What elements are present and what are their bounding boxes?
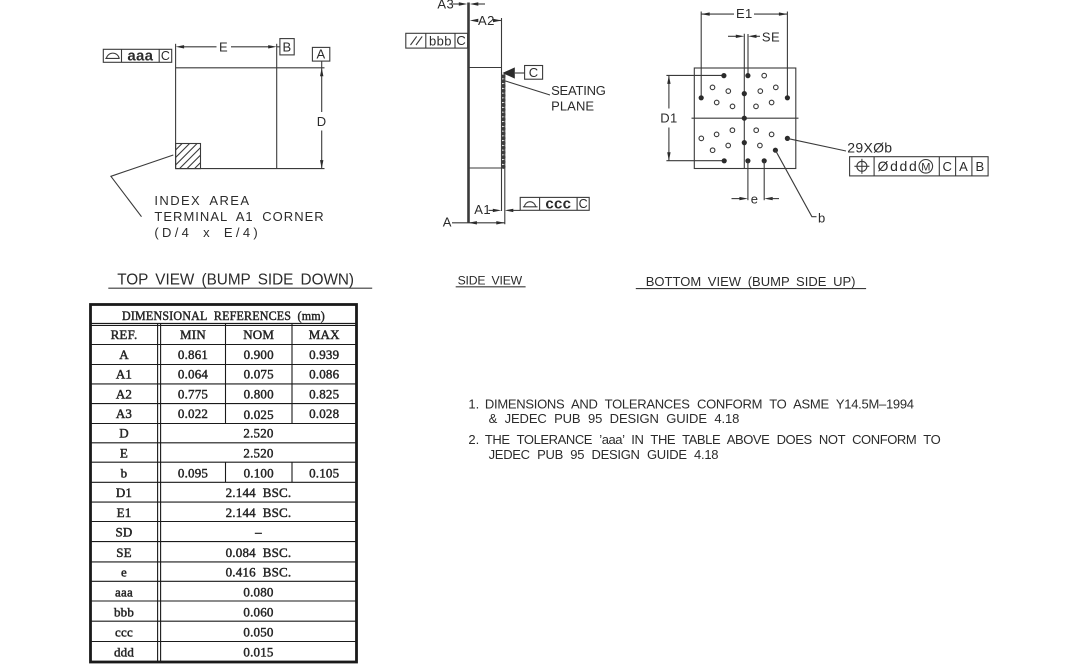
svg-text:2.520: 2.520 — [243, 426, 273, 441]
svg-text:1.: 1. — [468, 396, 479, 411]
svg-text:SE: SE — [116, 545, 132, 560]
svg-text:A3: A3 — [116, 406, 132, 421]
svg-text:aaa: aaa — [127, 47, 153, 64]
svg-text:0.025: 0.025 — [244, 407, 274, 422]
svg-text:A: A — [119, 347, 129, 362]
svg-text:0.086: 0.086 — [309, 367, 340, 382]
svg-text:2.144 BSC.: 2.144 BSC. — [226, 485, 292, 500]
svg-text:REF.: REF. — [111, 327, 138, 342]
svg-text:D: D — [119, 426, 129, 441]
svg-text:0.105: 0.105 — [309, 465, 339, 480]
svg-text:ddd: ddd — [114, 645, 134, 660]
svg-text:DIMENSIONS AND TOLERANCES CONF: DIMENSIONS AND TOLERANCES CONFORM TO ASM… — [485, 396, 914, 411]
svg-text:SIDE VIEW: SIDE VIEW — [458, 274, 523, 288]
svg-text:MIN: MIN — [180, 327, 206, 342]
svg-text:E1: E1 — [736, 6, 753, 21]
svg-text:M: M — [921, 162, 930, 174]
svg-text:C: C — [943, 159, 953, 174]
svg-text:–: – — [254, 525, 262, 540]
svg-text:D1: D1 — [660, 110, 677, 125]
svg-text:D1: D1 — [116, 485, 132, 500]
svg-text:C: C — [161, 49, 170, 63]
svg-text:0.080: 0.080 — [243, 584, 273, 599]
svg-text:b: b — [818, 211, 826, 226]
svg-text:0.939: 0.939 — [309, 347, 339, 362]
svg-text:0.064: 0.064 — [178, 367, 209, 382]
svg-text:A1: A1 — [116, 367, 132, 382]
svg-text:A: A — [317, 47, 326, 62]
svg-text:INDEX AREA: INDEX AREA — [154, 193, 249, 208]
svg-text:0.775: 0.775 — [178, 386, 208, 401]
svg-text:SD: SD — [115, 525, 132, 540]
svg-text:0.861: 0.861 — [178, 347, 208, 362]
svg-text:E: E — [219, 40, 228, 55]
svg-text:0.100: 0.100 — [244, 465, 274, 480]
svg-text:B: B — [282, 39, 291, 54]
svg-text:A2: A2 — [116, 386, 132, 401]
svg-text:D: D — [317, 114, 327, 129]
svg-text:0.095: 0.095 — [178, 465, 208, 480]
svg-text:0.084 BSC.: 0.084 BSC. — [226, 545, 292, 560]
svg-text:SE: SE — [762, 29, 780, 44]
svg-text:ccc: ccc — [115, 625, 133, 640]
svg-text:e: e — [751, 192, 759, 207]
svg-text:bbb: bbb — [429, 33, 452, 48]
svg-text:2.520: 2.520 — [243, 445, 273, 460]
svg-text:TERMINAL A1 CORNER: TERMINAL A1 CORNER — [154, 209, 324, 224]
svg-text:0.900: 0.900 — [244, 347, 274, 362]
svg-text:C: C — [579, 197, 588, 211]
svg-text:e: e — [121, 565, 127, 580]
svg-text:0.022: 0.022 — [178, 406, 208, 421]
svg-text:0.825: 0.825 — [309, 386, 339, 401]
svg-text:SEATING: SEATING — [551, 83, 606, 98]
svg-text:ccc: ccc — [545, 195, 571, 212]
svg-text:PLANE: PLANE — [551, 98, 594, 113]
svg-text:TOP VIEW (BUMP SIDE DOWN): TOP VIEW (BUMP SIDE DOWN) — [117, 272, 354, 289]
svg-text:A3: A3 — [437, 0, 454, 12]
svg-text:BOTTOM VIEW (BUMP SIDE UP): BOTTOM VIEW (BUMP SIDE UP) — [646, 274, 856, 289]
svg-text:0.416 BSC.: 0.416 BSC. — [226, 565, 292, 580]
svg-text:A2: A2 — [478, 13, 495, 28]
svg-text:0.050: 0.050 — [243, 625, 273, 640]
svg-text:A: A — [959, 159, 968, 174]
svg-text:2.: 2. — [468, 432, 479, 447]
svg-text:E1: E1 — [117, 505, 132, 520]
svg-text:29XØb: 29XØb — [847, 139, 892, 155]
svg-text:bbb: bbb — [114, 605, 134, 620]
svg-text:Øddd: Øddd — [878, 158, 918, 174]
svg-text:A: A — [443, 214, 452, 229]
svg-text:DIMENSIONAL REFERENCES (mm): DIMENSIONAL REFERENCES (mm) — [122, 308, 325, 323]
svg-text:0.028: 0.028 — [309, 406, 339, 421]
svg-text:A1: A1 — [474, 202, 491, 217]
svg-text:THE TOLERANCE ’aaa’ IN THE TAB: THE TOLERANCE ’aaa’ IN THE TABLE ABOVE D… — [485, 432, 941, 447]
svg-text:MAX: MAX — [309, 327, 340, 342]
svg-text:0.060: 0.060 — [243, 605, 273, 620]
svg-text:0.075: 0.075 — [244, 367, 274, 382]
svg-text:& JEDEC PUB 95 DESIGN GUIDE 4.: & JEDEC PUB 95 DESIGN GUIDE 4.18 — [489, 411, 740, 426]
svg-text:B: B — [975, 159, 984, 174]
svg-text:2.144 BSC.: 2.144 BSC. — [226, 505, 292, 520]
svg-text:NOM: NOM — [243, 327, 274, 342]
svg-text:E: E — [120, 445, 128, 460]
svg-text:0.015: 0.015 — [243, 645, 273, 660]
svg-text:0.800: 0.800 — [244, 386, 274, 401]
svg-text:C: C — [456, 33, 466, 48]
svg-text:(D/4 x E/4): (D/4 x E/4) — [154, 225, 258, 240]
svg-text:aaa: aaa — [115, 584, 133, 599]
svg-text:C: C — [529, 65, 539, 80]
svg-text:JEDEC PUB 95 DESIGN GUIDE 4.18: JEDEC PUB 95 DESIGN GUIDE 4.18 — [489, 447, 719, 462]
svg-text:b: b — [121, 465, 128, 480]
